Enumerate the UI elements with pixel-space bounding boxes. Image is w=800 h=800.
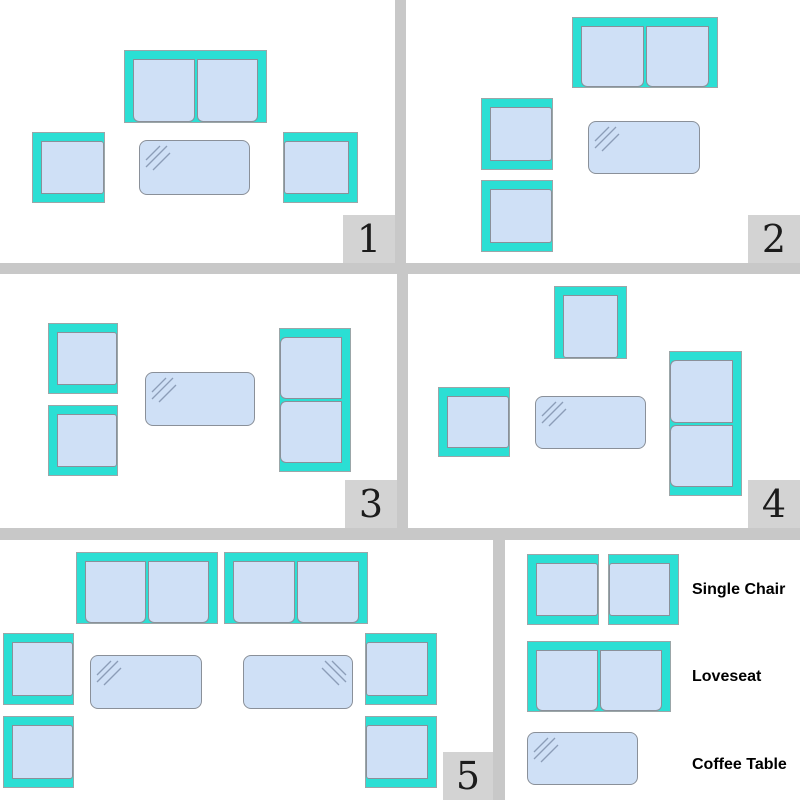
layout-panel-1: 1 bbox=[0, 0, 395, 263]
loveseat-seat bbox=[233, 561, 295, 623]
coffee-table bbox=[527, 732, 638, 785]
panel-number-badge: 1 bbox=[343, 215, 395, 263]
panel-number-badge: 4 bbox=[748, 480, 800, 528]
loveseat-seat bbox=[600, 650, 662, 711]
coffee-table bbox=[243, 655, 353, 709]
coffee-table bbox=[588, 121, 700, 174]
glass-shine-icon bbox=[95, 659, 125, 689]
loveseat-seat bbox=[280, 401, 342, 463]
chair-seat bbox=[57, 332, 117, 385]
chair-seat bbox=[490, 107, 552, 161]
layout-panel-3: 3 bbox=[0, 274, 397, 528]
loveseat bbox=[224, 552, 368, 624]
layout-panel-5: 5 bbox=[0, 540, 493, 800]
chair-seat bbox=[12, 642, 73, 696]
loveseat-seat bbox=[581, 26, 644, 87]
loveseat-seat bbox=[148, 561, 209, 623]
chair-seat bbox=[447, 396, 509, 448]
legend-panel: Single Chair Loveseat Coffee Table bbox=[505, 540, 800, 800]
loveseat bbox=[124, 50, 267, 123]
legend-label-coffee-table: Coffee Table bbox=[692, 756, 787, 774]
chair-seat bbox=[490, 189, 552, 243]
layout-panel-2: 2 bbox=[406, 0, 800, 263]
glass-shine-icon bbox=[532, 736, 562, 766]
loveseat-seat bbox=[197, 59, 259, 122]
loveseat bbox=[279, 328, 351, 472]
chair-seat bbox=[609, 563, 670, 616]
single-chair bbox=[365, 633, 437, 705]
single-chair bbox=[481, 180, 553, 252]
chair-seat bbox=[563, 295, 618, 358]
layout-panel-4: 4 bbox=[408, 274, 800, 528]
panel-number-badge: 2 bbox=[748, 215, 800, 263]
loveseat bbox=[669, 351, 742, 496]
glass-shine-icon bbox=[150, 376, 180, 406]
loveseat bbox=[527, 641, 671, 712]
single-chair bbox=[48, 405, 118, 476]
loveseat bbox=[76, 552, 218, 624]
coffee-table bbox=[145, 372, 255, 426]
single-chair bbox=[32, 132, 105, 203]
chair-seat bbox=[284, 141, 349, 194]
single-chair bbox=[608, 554, 679, 625]
loveseat-seat bbox=[280, 337, 342, 399]
coffee-table bbox=[139, 140, 250, 195]
chair-seat bbox=[12, 725, 73, 779]
furniture-layout-diagram: 1 2 bbox=[0, 0, 800, 800]
loveseat-seat bbox=[297, 561, 359, 623]
chair-seat bbox=[41, 141, 104, 194]
loveseat-seat bbox=[670, 425, 733, 488]
loveseat-seat bbox=[646, 26, 709, 87]
chair-seat bbox=[57, 414, 117, 467]
single-chair bbox=[527, 554, 599, 625]
loveseat-seat bbox=[670, 360, 733, 423]
single-chair bbox=[365, 716, 437, 788]
legend-label-single-chair: Single Chair bbox=[692, 581, 785, 599]
single-chair bbox=[3, 716, 74, 788]
single-chair bbox=[3, 633, 74, 705]
legend-label-loveseat: Loveseat bbox=[692, 668, 761, 686]
single-chair bbox=[438, 387, 510, 457]
single-chair bbox=[48, 323, 118, 394]
loveseat-seat bbox=[133, 59, 195, 122]
loveseat bbox=[572, 17, 718, 88]
loveseat-seat bbox=[536, 650, 598, 711]
glass-shine-icon bbox=[318, 659, 348, 689]
chair-seat bbox=[536, 563, 598, 616]
chair-seat bbox=[366, 725, 428, 779]
glass-shine-icon bbox=[593, 125, 623, 155]
chair-seat bbox=[366, 642, 428, 696]
panel-number-badge: 5 bbox=[443, 752, 493, 800]
single-chair bbox=[481, 98, 553, 170]
single-chair bbox=[554, 286, 627, 359]
glass-shine-icon bbox=[540, 400, 570, 430]
glass-shine-icon bbox=[144, 144, 174, 174]
single-chair bbox=[283, 132, 358, 203]
loveseat-seat bbox=[85, 561, 146, 623]
coffee-table bbox=[535, 396, 646, 449]
panel-number-badge: 3 bbox=[345, 480, 397, 528]
coffee-table bbox=[90, 655, 202, 709]
